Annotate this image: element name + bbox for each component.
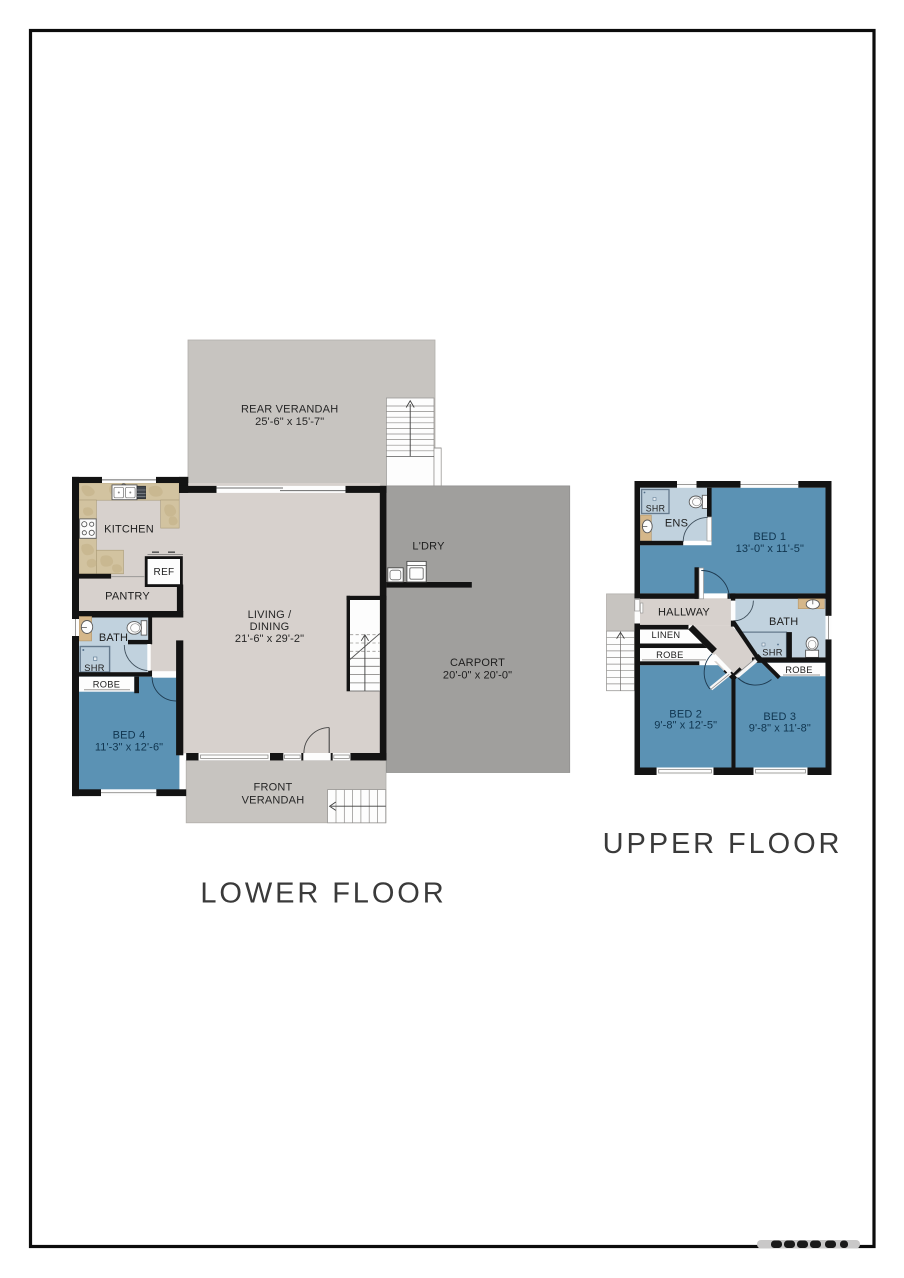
svg-text:25'-6" x 15'-7": 25'-6" x 15'-7" bbox=[255, 416, 324, 428]
svg-text:FRONT: FRONT bbox=[254, 782, 293, 794]
svg-text:9'-8" x 11'-8": 9'-8" x 11'-8" bbox=[749, 723, 811, 735]
svg-text:REF: REF bbox=[154, 567, 175, 578]
svg-text:BATH: BATH bbox=[99, 632, 128, 644]
svg-text:BED 2: BED 2 bbox=[669, 708, 702, 720]
svg-text:REAR VERANDAH: REAR VERANDAH bbox=[241, 404, 338, 416]
svg-text:SHR: SHR bbox=[646, 504, 665, 514]
svg-text:ROBE: ROBE bbox=[93, 679, 121, 689]
svg-text:BATH: BATH bbox=[769, 616, 798, 628]
svg-text:LOWER FLOOR: LOWER FLOOR bbox=[200, 878, 446, 910]
svg-text:VERANDAH: VERANDAH bbox=[242, 795, 305, 807]
svg-text:BED 1: BED 1 bbox=[753, 531, 786, 543]
svg-text:13'-0" x 11'-5": 13'-0" x 11'-5" bbox=[736, 543, 804, 555]
svg-text:LIVING /: LIVING / bbox=[248, 609, 293, 621]
svg-text:ROBE: ROBE bbox=[785, 665, 813, 675]
svg-text:BED 4: BED 4 bbox=[113, 730, 146, 742]
svg-text:KITCHEN: KITCHEN bbox=[104, 523, 154, 535]
svg-text:PANTRY: PANTRY bbox=[105, 590, 150, 602]
svg-text:LINEN: LINEN bbox=[652, 630, 681, 640]
svg-text:HALLWAY: HALLWAY bbox=[658, 606, 710, 618]
svg-text:SHR: SHR bbox=[762, 647, 783, 657]
svg-text:SHR: SHR bbox=[84, 663, 105, 673]
svg-text:BED 3: BED 3 bbox=[763, 711, 796, 723]
svg-text:11'-3" x 12'-6": 11'-3" x 12'-6" bbox=[95, 742, 163, 754]
svg-text:20'-0" x 20'-0": 20'-0" x 20'-0" bbox=[443, 670, 512, 682]
svg-text:DINING: DINING bbox=[250, 621, 290, 633]
svg-text:UPPER FLOOR: UPPER FLOOR bbox=[603, 828, 843, 860]
svg-text:ENS: ENS bbox=[665, 518, 688, 530]
svg-text:ROBE: ROBE bbox=[656, 650, 684, 660]
svg-text:L'DRY: L'DRY bbox=[412, 541, 445, 553]
svg-text:9'-8" x 12'-5": 9'-8" x 12'-5" bbox=[654, 720, 717, 732]
svg-text:21'-6" x 29'-2": 21'-6" x 29'-2" bbox=[235, 633, 304, 645]
svg-text:CARPORT: CARPORT bbox=[450, 657, 505, 669]
